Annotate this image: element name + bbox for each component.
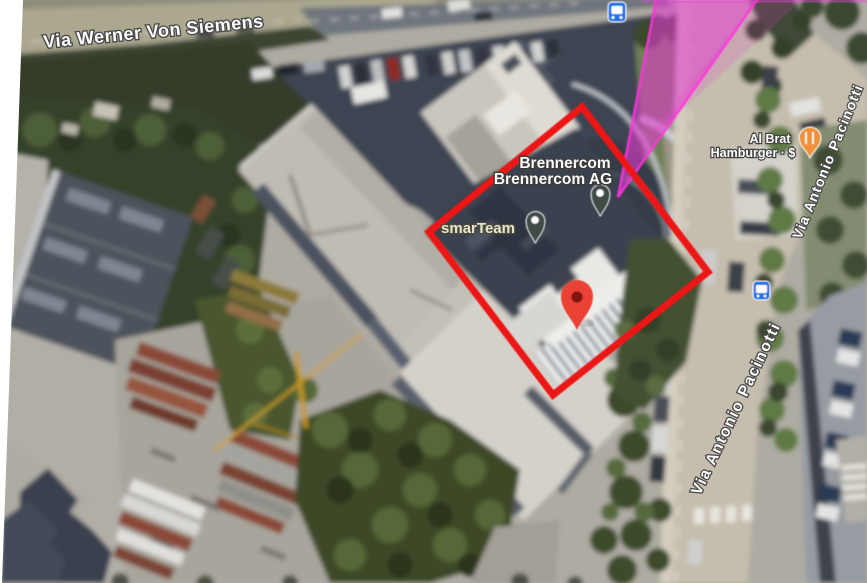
svg-text:Hamburger · $: Hamburger · $ (711, 146, 796, 160)
svg-text:smarTeam: smarTeam (441, 220, 515, 237)
svg-text:Brennercom: Brennercom (519, 155, 610, 172)
svg-text:Brennercom AG: Brennercom AG (494, 171, 612, 188)
svg-text:Al Brat: Al Brat (750, 132, 792, 146)
